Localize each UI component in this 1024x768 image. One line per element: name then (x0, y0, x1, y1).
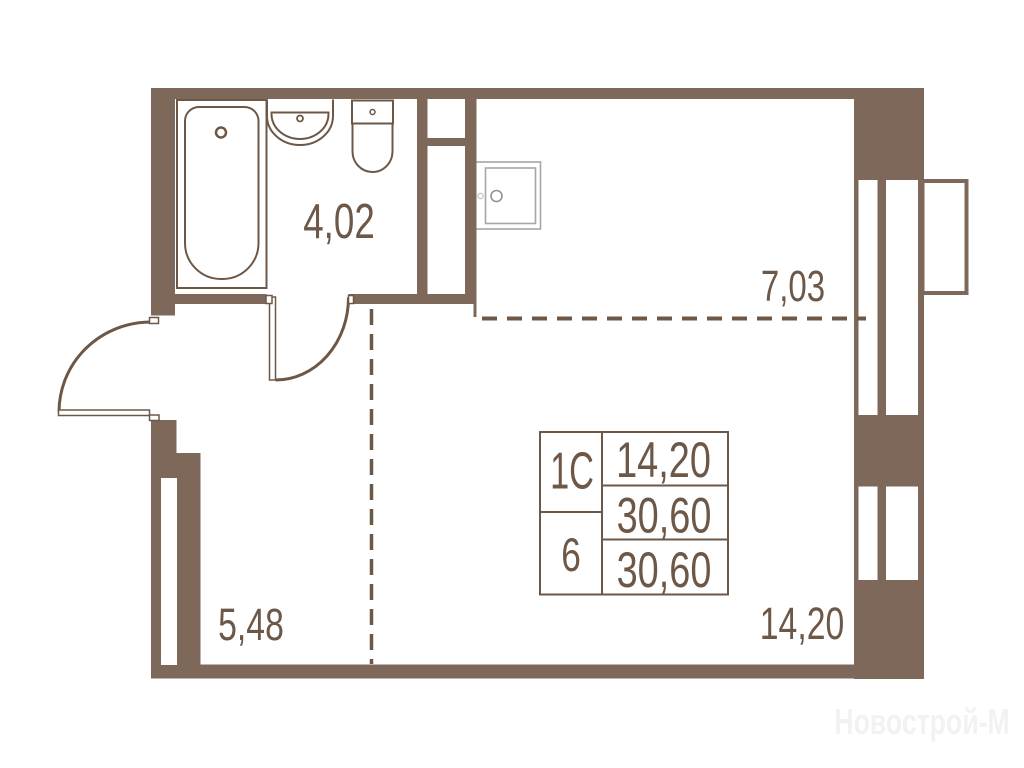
svg-text:14,20: 14,20 (616, 433, 711, 488)
svg-text:14,20: 14,20 (760, 599, 844, 649)
svg-text:7,03: 7,03 (761, 263, 825, 312)
svg-text:6: 6 (561, 528, 581, 581)
svg-text:30,60: 30,60 (617, 488, 712, 543)
svg-text:1С: 1С (550, 442, 594, 500)
svg-text:4,02: 4,02 (303, 195, 375, 249)
svg-text:5,48: 5,48 (218, 600, 284, 650)
svg-text:30,60: 30,60 (617, 543, 712, 598)
svg-text:Новострой-М: Новострой-М (834, 701, 1009, 742)
